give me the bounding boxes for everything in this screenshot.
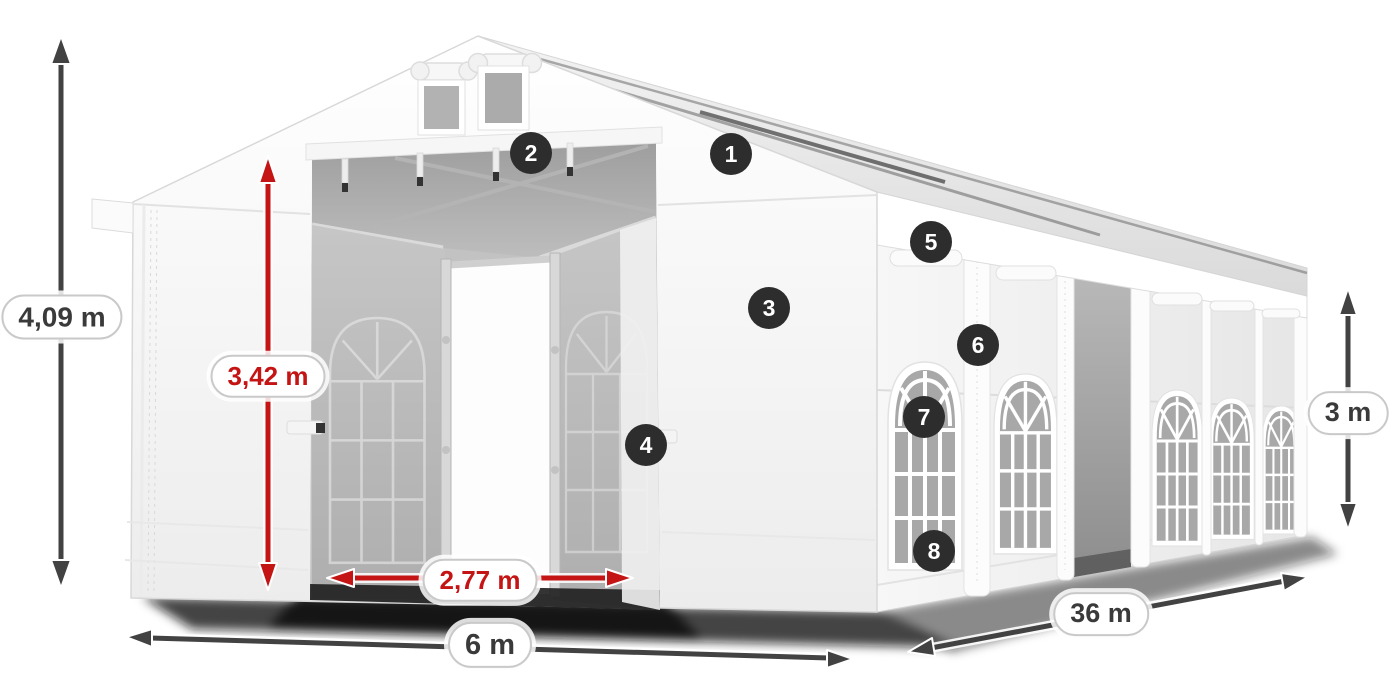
interior-open-doorway (450, 256, 550, 596)
dimension-label-width: 6 m (448, 622, 532, 668)
callout-badge-4[interactable]: 4 (625, 424, 667, 466)
callout-badge-1[interactable]: 1 (710, 133, 752, 175)
dimension-label-entrance-height: 3,42 m (211, 355, 326, 398)
callout-badge-3[interactable]: 3 (748, 287, 790, 329)
side-door-opening (1074, 243, 1131, 577)
left-eave-cornice (92, 199, 133, 233)
dimension-label-side-height: 3 m (1308, 391, 1389, 435)
tent-illustration (0, 0, 1400, 700)
callout-badge-5[interactable]: 5 (910, 221, 952, 263)
callout-badge-8[interactable]: 8 (913, 530, 955, 572)
dimension-label-total-height: 4,09 m (1, 295, 122, 340)
entrance-opening (310, 142, 660, 612)
tent-dimension-diagram: 4,09 m 3,42 m 2,77 m 6 m 36 m 3 m 1 2 3 … (0, 0, 1400, 700)
callout-badge-2[interactable]: 2 (510, 132, 552, 174)
callout-badge-7[interactable]: 7 (903, 396, 945, 438)
dimension-label-length: 36 m (1053, 592, 1149, 636)
callout-badge-6[interactable]: 6 (957, 324, 999, 366)
dimension-label-entrance-width: 2,77 m (423, 559, 538, 602)
